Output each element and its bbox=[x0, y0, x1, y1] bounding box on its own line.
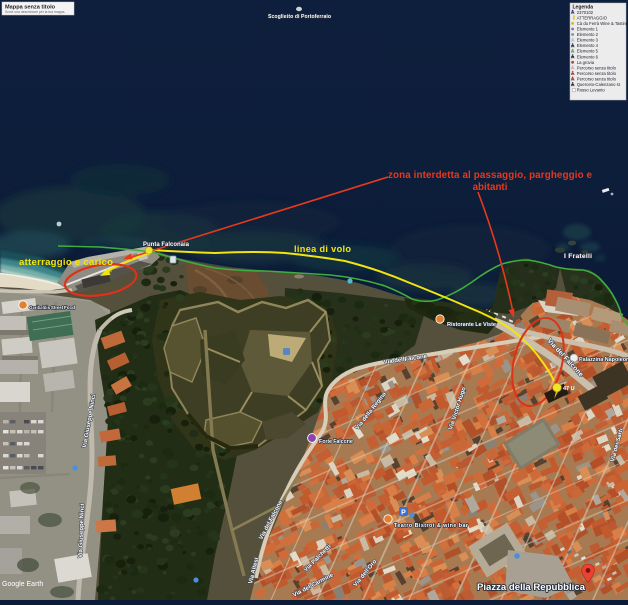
svg-text:linea di volo: linea di volo bbox=[294, 244, 351, 254]
svg-text:Cà du Ferrà Wine & Tasting: Cà du Ferrà Wine & Tasting bbox=[577, 21, 628, 26]
svg-text:Percorso senza titolo: Percorso senza titolo bbox=[577, 77, 617, 82]
svg-text:zona interdetta al passaggio,: zona interdetta al passaggio, pargheggio… bbox=[388, 170, 593, 181]
svg-text:P: P bbox=[401, 510, 406, 517]
svg-text:Google Earth: Google Earth bbox=[2, 581, 43, 588]
svg-text:Piazza della Repubblica: Piazza della Repubblica bbox=[477, 582, 586, 593]
svg-text:I Fratelli: I Fratelli bbox=[564, 253, 592, 260]
svg-text:Rosso Levanto: Rosso Levanto bbox=[577, 88, 606, 93]
svg-text:La grovia: La grovia bbox=[577, 60, 595, 65]
svg-text:Elemento 5: Elemento 5 bbox=[577, 49, 599, 54]
svg-text:2370102: 2370102 bbox=[577, 10, 594, 15]
svg-text:Teatro Bistrot & wine bar: Teatro Bistrot & wine bar bbox=[394, 523, 469, 529]
svg-text:ATTERRAGGIO: ATTERRAGGIO bbox=[577, 15, 608, 20]
svg-text:Scrivi una descrizione per la: Scrivi una descrizione per la tua mappa. bbox=[5, 10, 65, 14]
svg-text:abitanti: abitanti bbox=[473, 182, 508, 193]
svg-text:Scoglietto di Portoferraio: Scoglietto di Portoferraio bbox=[268, 14, 331, 20]
svg-text:atterraggio e carico: atterraggio e carico bbox=[19, 257, 113, 268]
svg-text:Palazzina Napoleoni: Palazzina Napoleoni bbox=[579, 357, 628, 363]
svg-text:Punta Falconaia: Punta Falconaia bbox=[143, 242, 190, 248]
svg-text:Garibaldis Street Food: Garibaldis Street Food bbox=[29, 305, 75, 311]
svg-text:Percorso senza titolo: Percorso senza titolo bbox=[577, 65, 617, 70]
svg-text:Elemento 1: Elemento 1 bbox=[577, 27, 599, 32]
svg-text:Ristorante Le Viste: Ristorante Le Viste bbox=[447, 322, 496, 328]
svg-text:Elemento 3: Elemento 3 bbox=[577, 38, 599, 43]
svg-text:Percorso senza titolo: Percorso senza titolo bbox=[577, 71, 617, 76]
svg-text:47 U: 47 U bbox=[563, 386, 575, 392]
svg-text:Querceto-Calenzano st: Querceto-Calenzano st bbox=[577, 82, 621, 87]
svg-text:Elemento 2: Elemento 2 bbox=[577, 32, 599, 37]
svg-text:Elemento 4: Elemento 4 bbox=[577, 43, 599, 48]
svg-text:Elemento 6: Elemento 6 bbox=[577, 54, 599, 59]
svg-text:Forte Falcone: Forte Falcone bbox=[319, 439, 353, 445]
